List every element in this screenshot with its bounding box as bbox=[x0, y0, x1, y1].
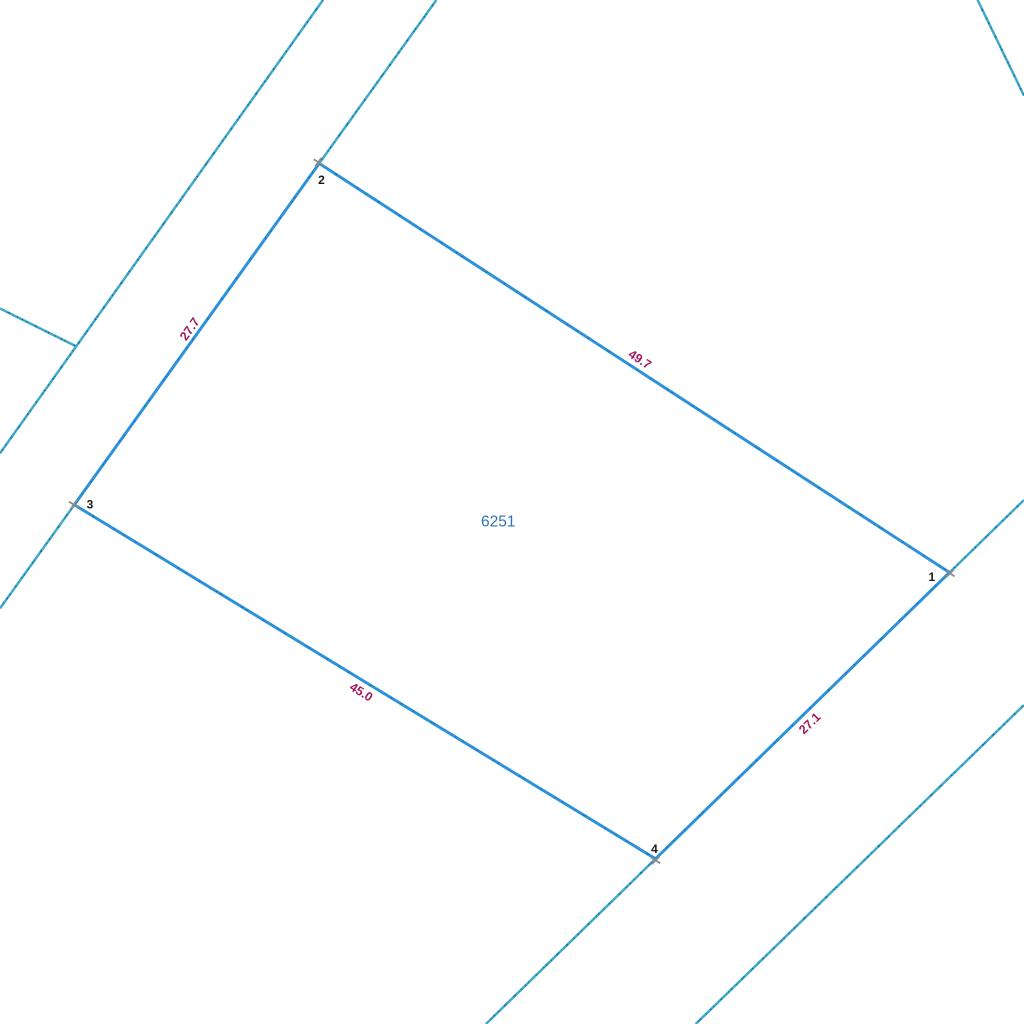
svg-text:3: 3 bbox=[87, 498, 94, 512]
svg-text:4: 4 bbox=[651, 842, 658, 856]
svg-text:2: 2 bbox=[318, 173, 325, 187]
svg-text:6251: 6251 bbox=[481, 514, 515, 531]
svg-text:1: 1 bbox=[929, 570, 936, 584]
